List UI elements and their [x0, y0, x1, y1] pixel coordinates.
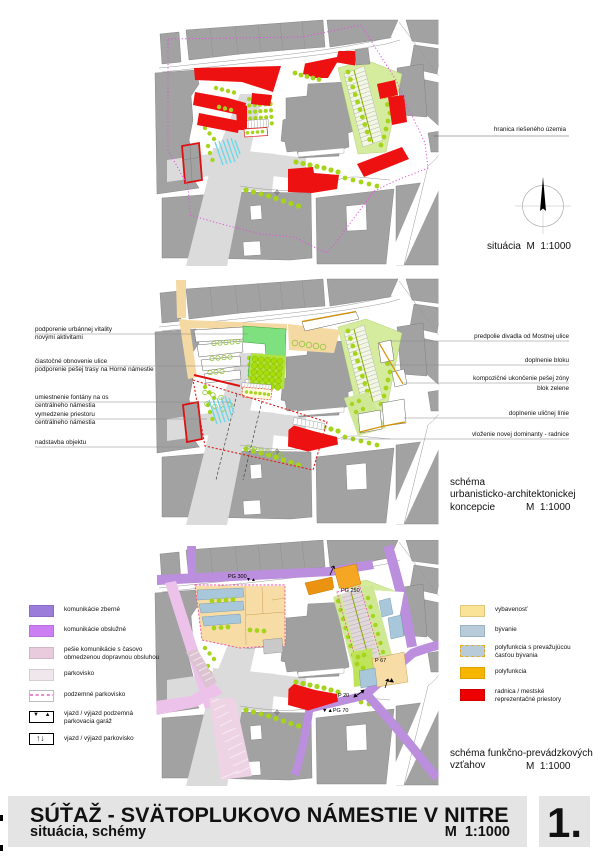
svg-text:PG 300: PG 300 — [228, 574, 247, 580]
svg-text:▼▲PG 70: ▼▲PG 70 — [322, 708, 348, 714]
svg-text:P 67: P 67 — [375, 658, 386, 664]
svg-text:P 20: P 20 — [338, 693, 349, 699]
svg-text:PG 250: PG 250 — [341, 588, 360, 594]
svg-text:▼▲: ▼▲ — [246, 577, 256, 583]
